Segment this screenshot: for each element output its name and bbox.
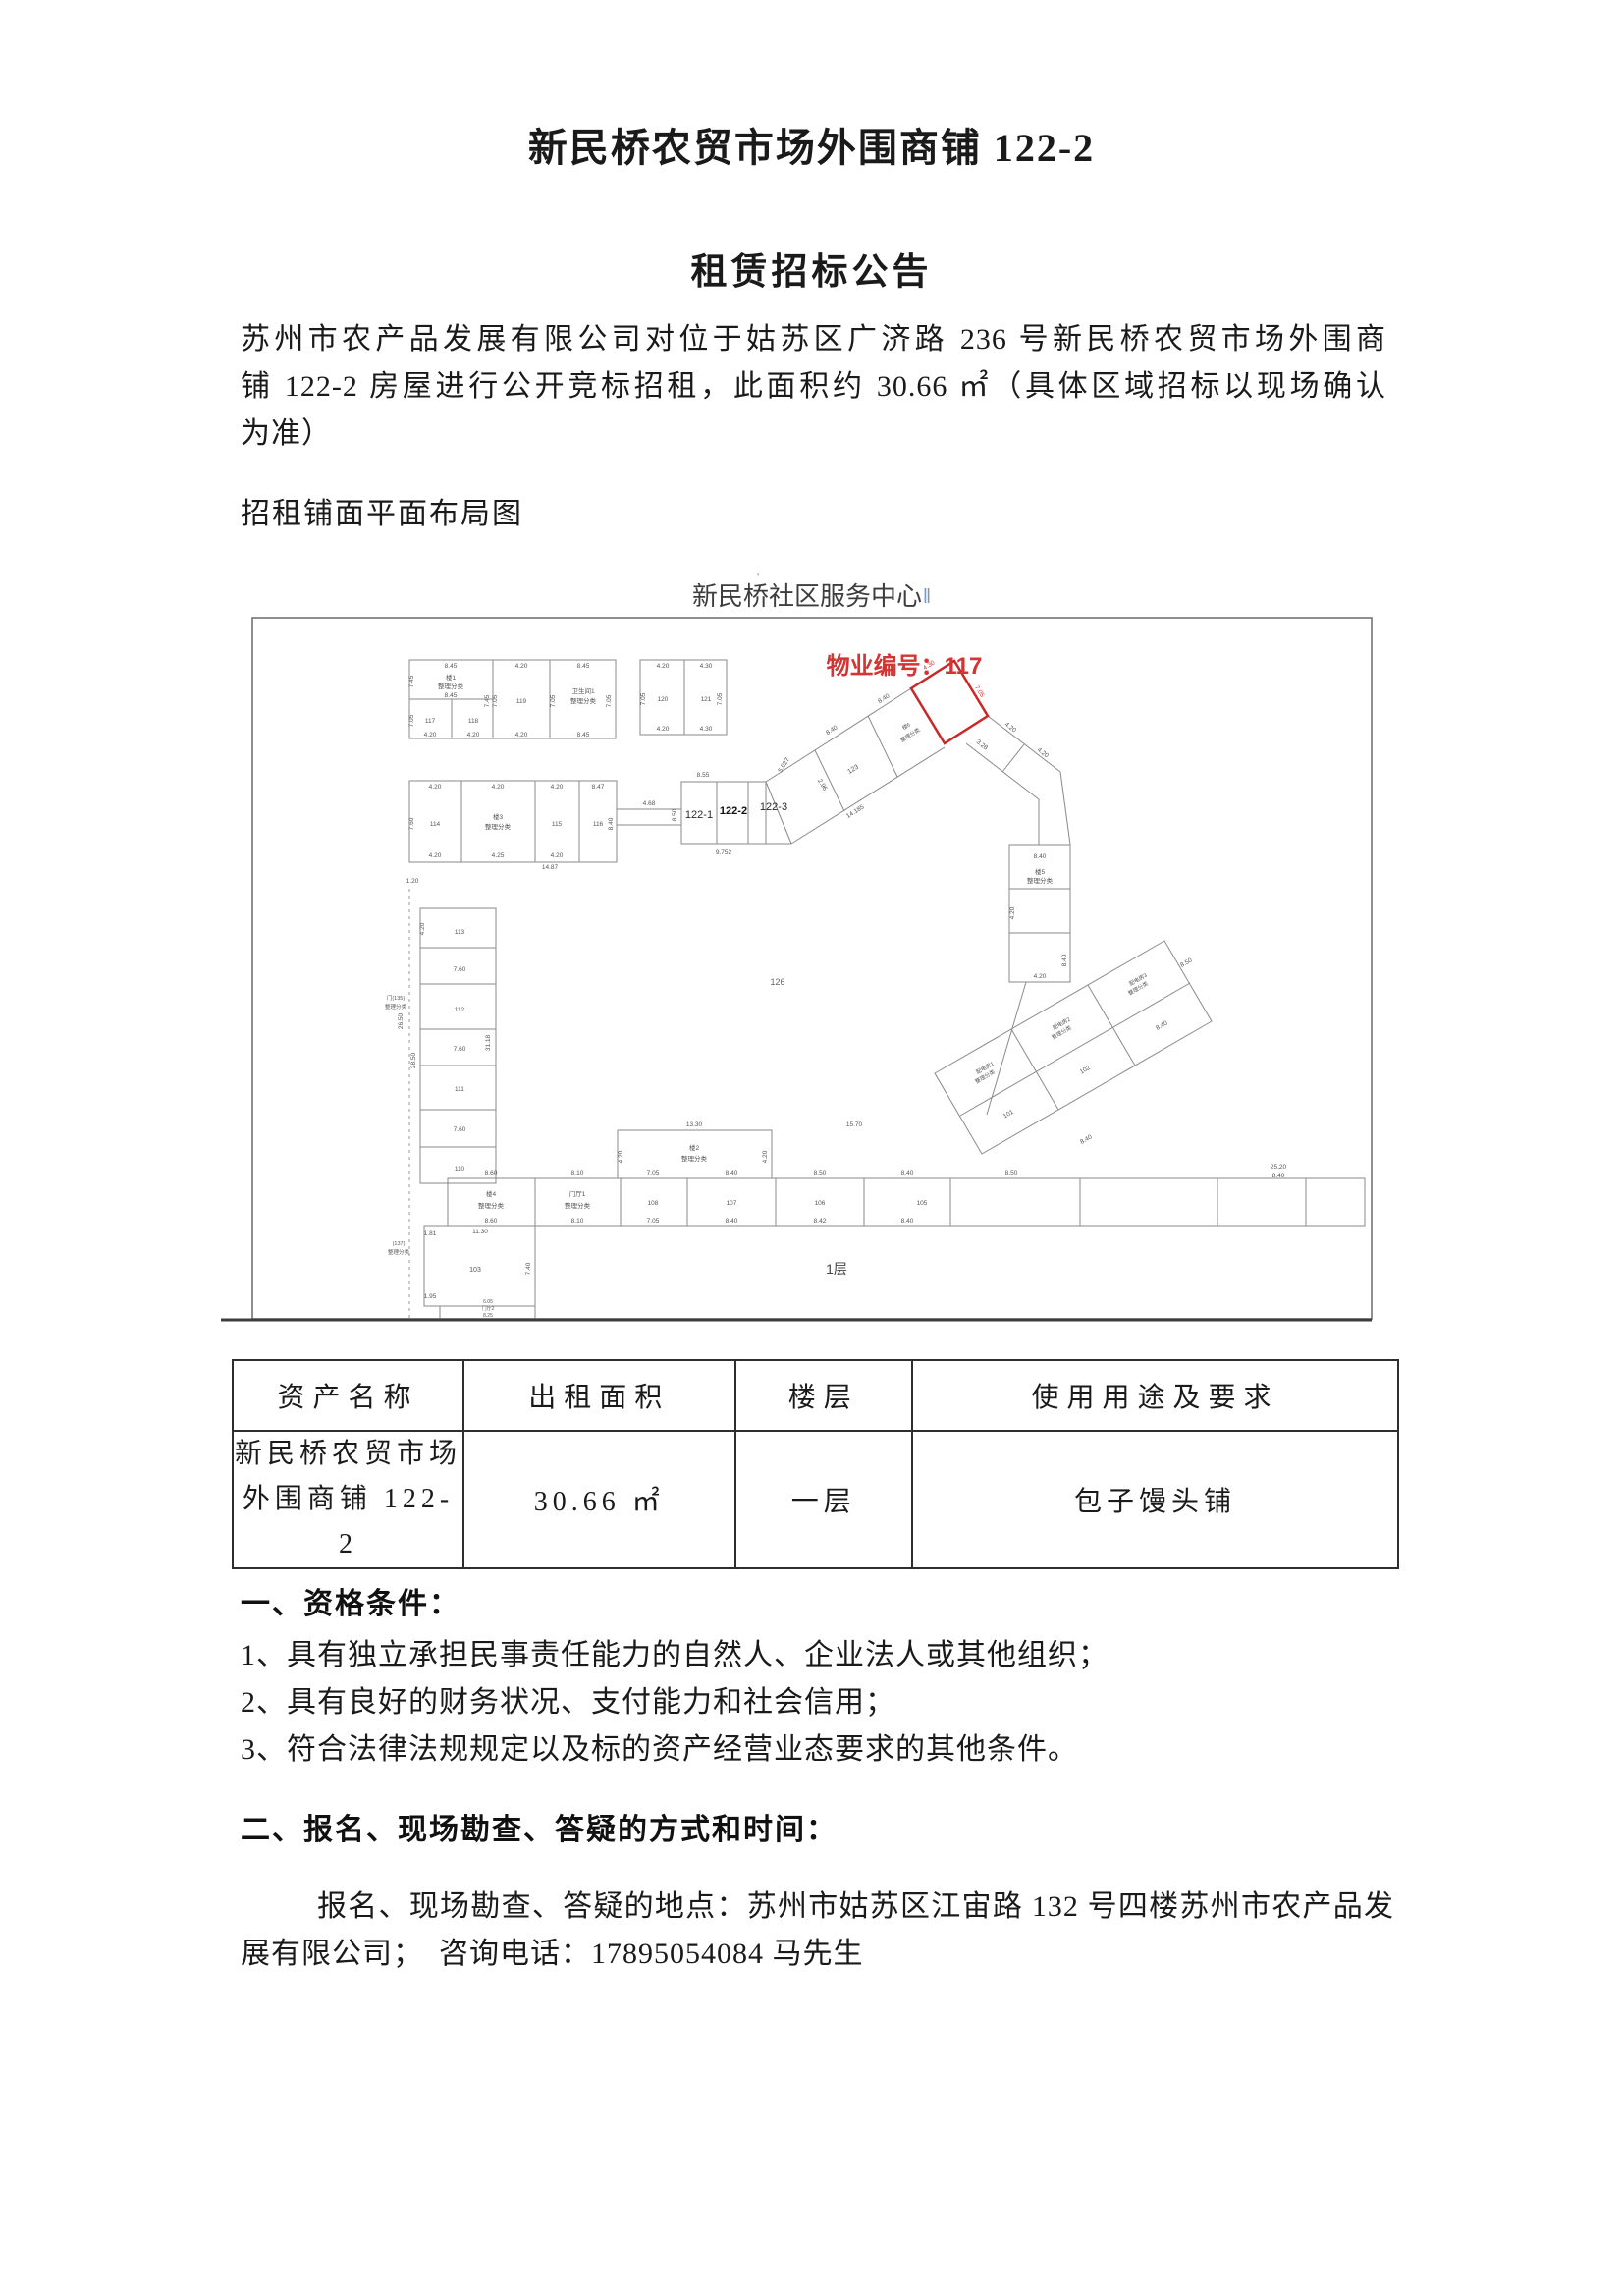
plan-text: 门厅2 <box>482 1305 495 1312</box>
plan-text: 4.20 <box>657 663 670 670</box>
plan-text: 4.30 <box>700 726 713 733</box>
plan-text: 14.185 <box>845 803 866 820</box>
plan-text: 4.20 <box>1009 906 1016 919</box>
plan-text: 122-2 <box>720 805 747 817</box>
floor-plan-svg: ’新民桥社区服务中心‖物业编号：1171层1268.45楼1整理分类8.4511… <box>147 565 1414 1340</box>
plan-text: 111 <box>455 1086 464 1093</box>
plan-wall-line <box>1002 744 1024 772</box>
plan-text: 8.40 <box>825 724 839 737</box>
plan-text: 4.20 <box>515 663 528 670</box>
plan-caption: 招租铺面平面布局图 <box>241 489 523 532</box>
header-floor: 楼层 <box>735 1360 912 1431</box>
plan-text: 8.60 <box>485 1218 498 1225</box>
plan-text: 122-3 <box>760 801 787 813</box>
plan-text: 4.20 <box>762 1150 769 1163</box>
plan-text: 4.20 <box>1034 973 1047 980</box>
plan-text: 整理分类 <box>388 1248 410 1256</box>
plan-wall-line <box>988 716 1060 772</box>
plan-text: 新民桥社区服务中心 <box>692 581 922 611</box>
plan-text: 整理分类 <box>1027 876 1054 885</box>
qualification-item: 1、具有独立承担民事责任能力的自然人、企业法人或其他组织； <box>241 1632 1394 1679</box>
plan-text: 110 <box>455 1166 465 1173</box>
plan-text: 103 <box>469 1267 481 1274</box>
plan-text: 4.20 <box>467 732 480 738</box>
section-2-heading: 二、报名、现场勘查、答疑的方式和时间： <box>241 1805 838 1848</box>
plan-text: 7.60 <box>454 1046 466 1053</box>
plan-text: 11.30 <box>472 1229 488 1235</box>
intro-line: 苏州市农产品发展有限公司对位于姑苏区广济路 236 号新民桥农贸市场外围商 <box>241 316 1386 363</box>
plan-text: 4.20 <box>419 922 426 935</box>
plan-text: 楼1 <box>446 673 457 682</box>
plan-text: 8.40 <box>877 692 892 705</box>
plan-wall-line <box>791 747 945 844</box>
plan-text: 31.18 <box>485 1034 492 1051</box>
plan-text: 1.20 <box>406 878 419 885</box>
plan-text: 8.55 <box>697 772 710 779</box>
plan-text: 4.20 <box>1003 721 1018 735</box>
plan-text: 8.50 <box>1179 957 1194 969</box>
plan-room-outline <box>640 660 727 735</box>
plan-text: 8.40 <box>1155 1019 1169 1032</box>
plan-text: 4.20 <box>657 726 670 733</box>
plan-text: 4.20 <box>429 852 442 859</box>
plan-text: 126 <box>770 977 784 987</box>
plan-text: 整理分类 <box>438 682 464 690</box>
plan-text: 楼3 <box>493 812 504 821</box>
qualification-item: 3、符合法律法规规定以及标的资产经营业态要求的其他条件。 <box>241 1726 1394 1774</box>
plan-text: 114 <box>430 821 441 828</box>
plan-text: 28.50 <box>410 1052 417 1068</box>
plan-text: 整理分类 <box>681 1154 708 1163</box>
plan-wall-line <box>1060 772 1070 845</box>
header-asset-name: 资产名称 <box>233 1360 463 1431</box>
plan-text: 1.81 <box>424 1230 437 1237</box>
plan-text: 8.47 <box>592 784 605 791</box>
plan-text: 7.05 <box>492 694 499 707</box>
section-1-heading: 一、资格条件： <box>241 1579 460 1622</box>
plan-text: 101 <box>1002 1109 1015 1121</box>
plan-text: 121 <box>701 696 712 703</box>
plan-text: 122-1 <box>685 809 713 821</box>
document-page: 新民桥农贸市场外围商铺 122-2 租赁招标公告 苏州市农产品发展有限公司对位于… <box>0 0 1623 2296</box>
document-subtitle: 租赁招标公告 <box>0 242 1623 295</box>
plan-text: 4.20 <box>429 784 442 791</box>
asset-table: 资产名称 出租面积 楼层 使用用途及要求 新民桥农贸市场 外围商铺 122-2 … <box>232 1359 1399 1569</box>
plan-text: 4.25 <box>492 852 505 859</box>
cell-usage: 包子馒头铺 <box>912 1431 1398 1568</box>
plan-text: 7.05 <box>640 692 647 705</box>
cell-asset-name: 新民桥农贸市场 外围商铺 122-2 <box>233 1431 463 1568</box>
cell-floor: 一层 <box>735 1431 912 1568</box>
plan-text: 8.40 <box>1079 1133 1094 1146</box>
plan-text: 7.45 <box>408 675 415 687</box>
plan-text: (137) <box>393 1241 406 1247</box>
plan-text: 7.05 <box>647 1218 660 1225</box>
plan-text: 107 <box>727 1200 737 1207</box>
plan-text: 8.45 <box>577 732 590 738</box>
plan-text: 116 <box>593 821 604 828</box>
plan-text: ‖ <box>923 586 931 608</box>
asset-name-line2: 外围商铺 122-2 <box>234 1477 462 1567</box>
document-title: 新民桥农贸市场外围商铺 122-2 <box>0 116 1623 173</box>
plan-text: 123 <box>846 764 860 776</box>
plan-text: 4.20 <box>551 784 564 791</box>
plan-text: 8.40 <box>901 1170 914 1176</box>
plan-text: 楼5 <box>1035 867 1046 876</box>
plan-text: 8.40 <box>1272 1173 1285 1179</box>
section-1-items: 1、具有独立承担民事责任能力的自然人、企业法人或其他组织； 2、具有良好的财务状… <box>241 1632 1394 1774</box>
asset-name-line1: 新民桥农贸市场 <box>234 1432 462 1477</box>
plan-text: 7.45 <box>484 694 491 707</box>
plan-text: 8.45 <box>445 663 458 670</box>
plan-text: 119 <box>516 698 527 705</box>
plan-wall-line <box>766 688 911 782</box>
plan-wall-line <box>868 716 897 777</box>
plan-text: 7.60 <box>454 1126 466 1133</box>
plan-text: 7.05 <box>647 1170 660 1176</box>
plan-text: 8.50 <box>672 808 678 821</box>
plan-text: 25.20 <box>1271 1164 1287 1171</box>
cell-area: 30.66 ㎡ <box>463 1431 735 1568</box>
qualification-item: 2、具有良好的财务状况、支付能力和社会信用； <box>241 1679 1394 1726</box>
plan-text: 整理分类 <box>478 1201 505 1210</box>
plan-room-outline <box>618 1130 772 1178</box>
plan-text: 118 <box>468 718 479 725</box>
plan-text: 115 <box>552 821 563 828</box>
plan-text: 105 <box>917 1200 928 1207</box>
plan-text: 8.40 <box>726 1218 738 1225</box>
plan-text: 8.10 <box>571 1170 584 1176</box>
plan-text: 8.42 <box>814 1218 827 1225</box>
plan-text: 7.05 <box>550 694 557 707</box>
plan-text: 8.25 <box>483 1313 493 1319</box>
plan-text: 120 <box>658 696 669 703</box>
plan-wall-line <box>1011 1029 1058 1110</box>
plan-text: 8.45 <box>577 663 590 670</box>
header-area: 出租面积 <box>463 1360 735 1431</box>
plan-text: 门厅1 <box>569 1189 586 1198</box>
plan-text: 4.30 <box>700 663 713 670</box>
plan-text: 整理分类 <box>485 822 512 831</box>
header-usage: 使用用途及要求 <box>912 1360 1398 1431</box>
intro-line: 为准） <box>241 410 1386 458</box>
plan-text: 8.40 <box>726 1170 738 1176</box>
plan-text: 1层 <box>826 1261 847 1277</box>
plan-text: 14.87 <box>542 864 559 871</box>
asset-table-header-row: 资产名称 出租面积 楼层 使用用途及要求 <box>233 1360 1398 1431</box>
plan-text: 13.30 <box>686 1121 703 1128</box>
plan-room-poly <box>935 941 1212 1154</box>
plan-text: 108 <box>648 1200 659 1207</box>
plan-text: 6.05 <box>483 1299 493 1305</box>
plan-text: 8.40 <box>1061 954 1068 966</box>
plan-text: 整理分类 <box>385 1003 407 1011</box>
plan-text: 4.20 <box>618 1150 624 1163</box>
plan-text: 4.20 <box>424 732 437 738</box>
plan-text: 102 <box>1079 1065 1092 1076</box>
plan-text: 117 <box>425 718 436 725</box>
plan-wall-line <box>1088 985 1135 1066</box>
plan-text: 楼2 <box>689 1143 700 1152</box>
plan-text: 1.95 <box>424 1293 437 1300</box>
plan-text: 整理分类 <box>565 1201 591 1210</box>
plan-text: 3.28 <box>975 738 990 752</box>
intro-paragraph: 苏州市农产品发展有限公司对位于姑苏区广济路 236 号新民桥农贸市场外围商 铺 … <box>241 316 1386 458</box>
plan-text: 7.60 <box>454 966 466 973</box>
section-2-paragraph: 报名、现场勘查、答疑的地点：苏州市姑苏区江宙路 132 号四楼苏州市农产品发展有… <box>241 1884 1394 1978</box>
plan-text: 4.68 <box>643 800 656 807</box>
plan-text: 卫生间1 <box>571 686 595 695</box>
plan-room-outline <box>424 1226 535 1306</box>
plan-text: 4.20 <box>515 732 528 738</box>
plan-text: 15.70 <box>846 1121 863 1128</box>
plan-text: 106 <box>815 1200 826 1207</box>
plan-text: 整理分类 <box>570 696 597 705</box>
plan-text: 112 <box>455 1007 465 1013</box>
plan-text: 5.027 <box>777 756 791 774</box>
plan-text: 楼4 <box>486 1189 497 1198</box>
plan-text: 26.50 <box>398 1012 405 1029</box>
plan-wall-line <box>960 983 1190 1116</box>
plan-text: 8.60 <box>485 1170 498 1176</box>
plan-text: 物业编号：117 <box>827 652 983 680</box>
plan-text: 门(135) <box>387 994 406 1002</box>
plan-text: 8.40 <box>901 1218 914 1225</box>
plan-text: 7.60 <box>408 817 415 830</box>
plan-text: 8.40 <box>1034 853 1047 860</box>
plan-room-outline <box>409 781 617 862</box>
plan-text: 8.50 <box>814 1170 827 1176</box>
plan-text: 7.05 <box>606 694 613 707</box>
plan-text: 9.752 <box>716 849 732 856</box>
plan-text: 4.20 <box>551 852 564 859</box>
plan-text: 8.45 <box>445 692 458 699</box>
plan-text: 8.10 <box>571 1218 584 1225</box>
plan-text: 8.50 <box>1005 1170 1018 1176</box>
plan-wall-line <box>987 982 1026 1115</box>
plan-text: 7.05 <box>717 692 724 705</box>
asset-table-data-row: 新民桥农贸市场 外围商铺 122-2 30.66 ㎡ 一层 包子馒头铺 <box>233 1431 1398 1568</box>
plan-text: 4.20 <box>492 784 505 791</box>
plan-text: 2.96 <box>816 778 829 793</box>
plan-text: 113 <box>455 929 465 936</box>
plan-text: 楼6 <box>900 721 912 732</box>
intro-line: 铺 122-2 房屋进行公开竞标招租，此面积约 30.66 ㎡（具体区域招标以现… <box>241 363 1386 410</box>
plan-text: 7.40 <box>525 1262 532 1275</box>
plan-text: 7.05 <box>408 714 415 727</box>
plan-text: 8.40 <box>608 817 615 830</box>
